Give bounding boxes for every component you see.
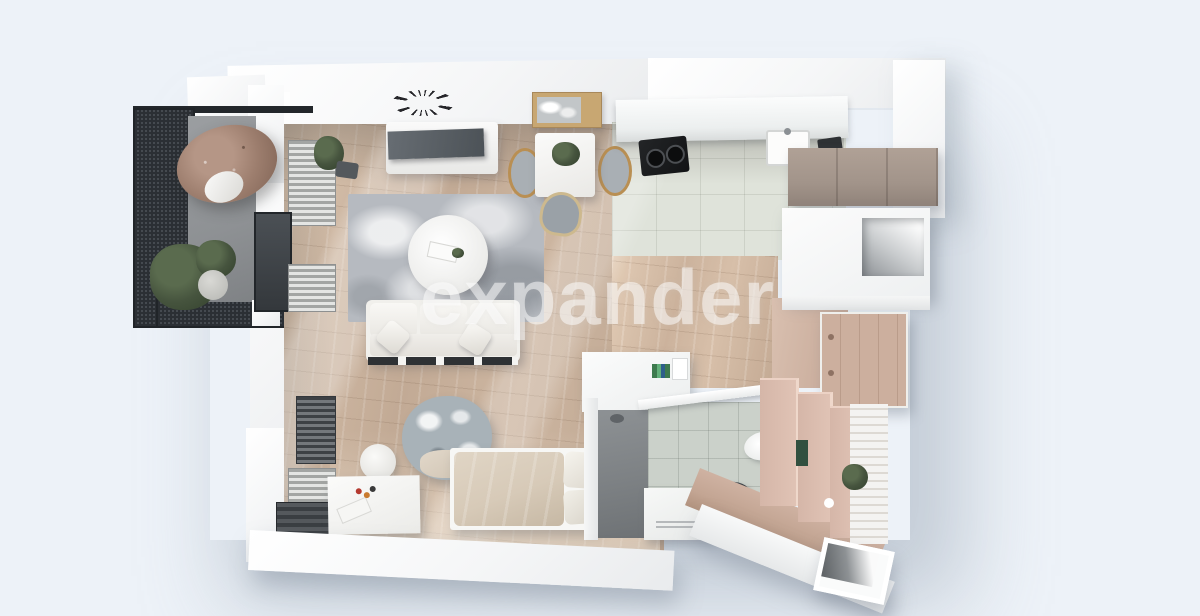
shelf-books-green <box>652 364 670 378</box>
white-desk <box>328 475 421 535</box>
wall-art-frame <box>532 92 602 128</box>
entry-door-panel <box>820 312 908 408</box>
sofa-legs-strip <box>368 357 518 365</box>
bathroom-plant <box>842 464 868 490</box>
balcony-glass-door <box>254 212 292 312</box>
wall-clock <box>392 90 454 116</box>
bathroom-partition-wall <box>584 398 598 540</box>
desk-tray <box>336 497 372 524</box>
cabinet-taupe-upper <box>788 148 938 206</box>
plant-stand-dark <box>335 161 359 180</box>
bedside-stool <box>360 444 396 480</box>
dining-table-plant <box>552 142 580 166</box>
wardrobe-ledge <box>782 296 930 310</box>
toilet-paper-holder <box>824 498 834 508</box>
tv <box>388 128 485 159</box>
cooktop-burner-right <box>665 144 686 165</box>
watermark-text: expander <box>420 252 775 343</box>
cooktop-burner-left <box>645 148 666 169</box>
green-wall-accent <box>796 440 808 466</box>
shower-head <box>610 414 624 423</box>
shower-floor <box>598 410 648 538</box>
window-radiator-3 <box>296 396 336 464</box>
door-handle-dot-2 <box>828 370 834 376</box>
kitchen-faucet <box>784 128 791 135</box>
balcony-plant-pot <box>198 270 228 300</box>
kitchen-countertop <box>616 96 849 142</box>
door-handle-dot-1 <box>828 334 834 340</box>
cooktop <box>638 136 690 177</box>
rose-wall-panel-1 <box>760 378 799 506</box>
shelf-towel-box <box>672 358 688 380</box>
floor-plan-canvas: expander <box>0 0 1200 616</box>
wardrobe-open-niche <box>862 218 924 276</box>
wardrobe-white-box <box>782 208 930 298</box>
desk-cosmetic-red <box>356 488 362 494</box>
window-radiator-2 <box>288 264 336 312</box>
desk-cosmetic-dark <box>370 486 376 492</box>
dining-chair-right <box>598 146 632 196</box>
wall-clock-center <box>405 96 441 110</box>
entry-door-niche-shadow <box>821 543 879 587</box>
desk-cosmetic-orange <box>364 492 370 498</box>
wall-art-print <box>537 97 581 123</box>
bed-duvet <box>454 452 564 526</box>
